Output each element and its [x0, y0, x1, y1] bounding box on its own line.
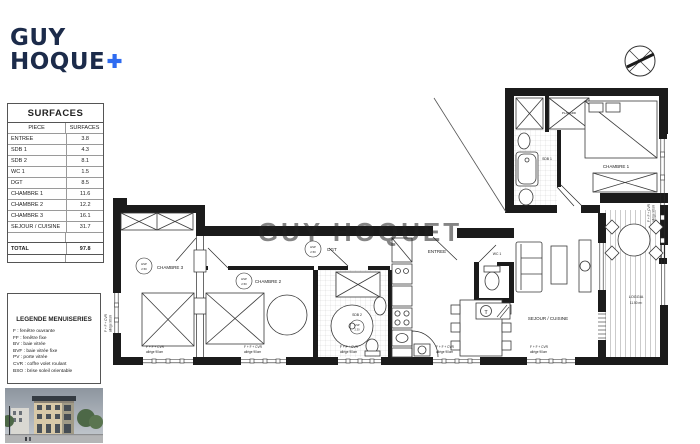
round-rug — [267, 295, 307, 335]
window-label: F + F + CVR allège 90cm — [436, 345, 455, 354]
sofa — [516, 242, 542, 292]
partition-column — [194, 236, 206, 357]
window-label: F + F + CVR allège 90cm — [146, 345, 165, 354]
hsp-label: HSP — [354, 323, 360, 327]
svg-text:F + F + CVR: F + F + CVR — [647, 203, 651, 222]
wardrobe-chambre3 — [121, 213, 193, 230]
window-label: F + F + CVR allège 90cm — [530, 345, 549, 354]
label-dgt: DGT — [327, 247, 337, 252]
duct-closet — [516, 98, 543, 129]
coffee-table — [551, 246, 567, 284]
floor-plan-drawing: CHAMBRE 1 SDB 1 PLACARD CHAMBRE 3 CHAMBR… — [0, 0, 700, 444]
bed-chambre3 — [142, 293, 194, 346]
window-label-right: F + F + CVR allège 90cm — [647, 203, 656, 222]
label-loggia: LOGGIA — [629, 295, 644, 299]
label-sejour: SEJOUR / CUISINE — [528, 316, 568, 321]
label-loggia-area: 11.50 m² — [630, 301, 642, 305]
window-label-left: F + F + CVR allège 90cm — [104, 313, 113, 332]
svg-text:allège 90cm: allège 90cm — [530, 350, 548, 354]
label-wc1: WC 1 — [493, 252, 502, 256]
tv-stand — [579, 240, 591, 292]
svg-text:allège 90cm: allège 90cm — [652, 204, 656, 222]
washing-machine — [414, 344, 430, 356]
window-label: F + F + CVR allège 90cm — [244, 345, 263, 354]
svg-text:F + F + CVR: F + F + CVR — [340, 345, 359, 349]
svg-text:F + F + CVR: F + F + CVR — [104, 313, 108, 332]
wc1-toilet — [484, 266, 500, 290]
hsp-value: 2.50 — [310, 250, 316, 254]
floor-plan-page: GUY HOQUE SURFACES PIECE SURFACES ENTREE… — [0, 0, 700, 444]
svg-text:allège 90cm: allège 90cm — [436, 350, 454, 354]
placard-sdb2 — [336, 272, 380, 297]
kitchen-units — [392, 238, 430, 357]
label-chambre1: CHAMBRE 1 — [603, 164, 630, 169]
hsp-label: HSP — [241, 277, 247, 281]
compass-icon — [625, 46, 655, 76]
hob-icon — [392, 308, 412, 328]
hsp-value: 2.50 — [141, 267, 147, 271]
hsp-value: 2.50 — [241, 282, 247, 286]
label-chambre2: CHAMBRE 2 — [255, 279, 282, 284]
kitchen-sink — [392, 330, 412, 346]
electrical-panel — [476, 303, 510, 319]
svg-text:F + F + CVR: F + F + CVR — [146, 345, 165, 349]
svg-text:allège 90cm: allège 90cm — [146, 350, 164, 354]
label-sdb2: SDB 2 — [352, 313, 362, 317]
svg-text:F + F + CVR: F + F + CVR — [244, 345, 263, 349]
label-entree: ENTREE — [428, 249, 446, 254]
svg-text:F + F + CVR: F + F + CVR — [436, 345, 455, 349]
bed-chambre1 — [585, 101, 657, 158]
label-sdb1: SDB 1 — [542, 157, 552, 161]
hsp-value: 2.30 — [354, 328, 360, 332]
label-placard: PLACARD — [562, 111, 577, 115]
loggia-table — [618, 224, 650, 256]
sdb1-bidet — [519, 189, 533, 205]
bed-chambre2 — [206, 293, 264, 344]
svg-text:allège 90cm: allège 90cm — [340, 350, 358, 354]
sdb1-washbasin — [518, 133, 530, 149]
sdb2-washbasin — [374, 297, 386, 315]
sejour-furniture — [451, 240, 591, 356]
svg-text:allège 90cm: allège 90cm — [109, 314, 113, 332]
sdb1-bathtub — [516, 152, 538, 186]
label-chambre3: CHAMBRE 3 — [157, 265, 184, 270]
agency-watermark: GUY HOQUET — [258, 217, 462, 247]
hsp-label: HSP — [141, 262, 147, 266]
sdb2-shower — [331, 305, 373, 347]
svg-text:allège 90cm: allège 90cm — [244, 350, 262, 354]
svg-text:F + F + CVR: F + F + CVR — [530, 345, 549, 349]
hsp-chambre2: HSP 2.50 — [236, 273, 252, 289]
window-label: F + F + CVR allège 90cm — [340, 345, 359, 354]
hsp-chambre3: HSP 2.50 — [136, 258, 152, 274]
dresser-chambre1 — [593, 173, 657, 192]
